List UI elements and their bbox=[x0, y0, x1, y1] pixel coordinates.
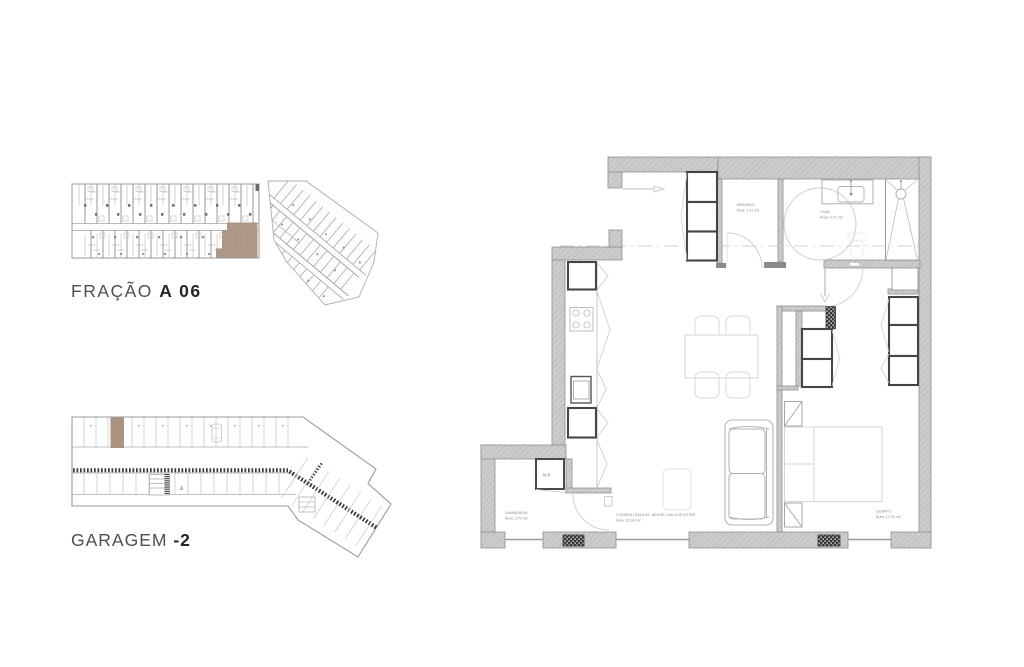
svg-text:M.R: M.R bbox=[543, 473, 551, 478]
svg-text:COZINHA | SALA DE JANTAR | SAL: COZINHA | SALA DE JANTAR | SALA DE ESTAR bbox=[616, 513, 696, 517]
svg-text:ARRUMOS: ARRUMOS bbox=[737, 203, 756, 207]
svg-text:Área: 12.76 m2: Área: 12.76 m2 bbox=[876, 515, 901, 519]
svg-text:Área: 3.70 m2: Área: 3.70 m2 bbox=[505, 517, 528, 521]
svg-text:FRAÇÃO A 06: FRAÇÃO A 06 bbox=[71, 280, 202, 301]
svg-text:Área: 4.71 m2: Área: 4.71 m2 bbox=[820, 216, 843, 220]
svg-text:QUARTO: QUARTO bbox=[876, 510, 891, 514]
svg-text:LAVANDARIA: LAVANDARIA bbox=[505, 511, 528, 515]
svg-text:GARAGEM -2: GARAGEM -2 bbox=[71, 530, 191, 550]
svg-text:I.SAN: I.SAN bbox=[820, 210, 830, 214]
svg-text:Área: 32.94 m2: Área: 32.94 m2 bbox=[616, 519, 641, 523]
svg-text:Área: 1.91 m2: Área: 1.91 m2 bbox=[737, 209, 760, 213]
